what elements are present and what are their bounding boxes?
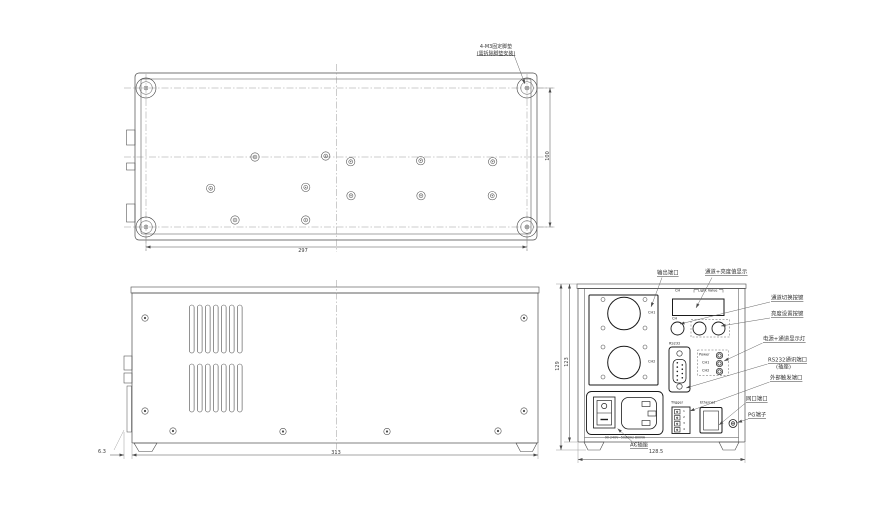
ch1-led-label: CH1 [702, 361, 709, 365]
trigger-label: Trigger [671, 401, 683, 405]
ch2-led-label: CH2 [702, 369, 709, 373]
side-outline [132, 293, 538, 443]
output-ch1-label: CH1 [648, 311, 655, 315]
bottom-view [124, 64, 553, 252]
foot-pad-note-line2: (需拆除脚垫安装) [477, 51, 516, 56]
side-view [114, 280, 539, 452]
callout-indicators: 电源+通道显示灯 [763, 337, 805, 343]
lid-edge [577, 284, 746, 289]
side-tab [124, 356, 132, 370]
callout-brightness-set: 亮度设置按键 [771, 312, 803, 318]
dim-width-value: 297 [298, 249, 307, 254]
trigger-pin-1: 1 [683, 410, 685, 413]
ac-inlet-module [587, 392, 664, 435]
side-tab [127, 130, 136, 145]
side-tab [124, 373, 132, 383]
callout-ac-socket: AC插座 [630, 443, 648, 449]
channel-button-label: CH [672, 317, 677, 321]
centerlines [124, 64, 553, 252]
rs232-connector [669, 347, 690, 392]
screw-holes [207, 152, 497, 224]
callout-channel-switch: 通道切换按键 [771, 296, 803, 302]
foot [134, 443, 157, 452]
power-led-label: Power [699, 353, 710, 357]
channel-button [671, 322, 684, 335]
lid-edge [131, 287, 539, 293]
brightness-up-button [712, 322, 725, 335]
back-view [577, 284, 746, 450]
dim-foot-offset-value: 6.3 [98, 449, 106, 454]
output-connector-ch2 [608, 346, 641, 379]
callout-lan-port: 网口端口 [746, 397, 768, 403]
side-tab [127, 163, 136, 170]
ac-rating-label: 90-240V~50/60Hz 800VA [604, 436, 644, 439]
foot [584, 442, 604, 450]
foot-pad-note-line1: 4-M3固定脚垫 [480, 44, 512, 49]
digital-display [673, 299, 725, 316]
callout-trigger-port: 外部触发端口 [770, 376, 802, 382]
projection-line [114, 430, 124, 450]
dim-back-height-outer-value: 129 [556, 361, 561, 370]
display-ch-label: CH [675, 289, 680, 293]
display-bracket-right [719, 290, 723, 293]
foot [516, 443, 537, 452]
buttons [671, 322, 725, 335]
pg-terminal [729, 420, 737, 428]
technical-drawing: 4-M3固定脚垫 (需拆除脚垫安装) 297 100 313 6.3 128.5… [0, 0, 888, 522]
display-value-label: Light Value [698, 289, 717, 293]
dim-back-width-value: 128.5 [648, 449, 662, 454]
output-connector-ch1 [608, 297, 641, 330]
callout-display: 通道+亮度值显示 [705, 270, 747, 276]
iec-inlet [622, 398, 657, 430]
screw-holes [142, 315, 527, 435]
trigger-pin-4: 4 [683, 428, 685, 431]
trigger-pin-3: 3 [683, 422, 685, 425]
side-tab [127, 204, 136, 222]
callout-rs232-line2: (插座) [776, 365, 791, 370]
ethernet-label: Ethernet [700, 401, 715, 405]
side-tab [127, 386, 132, 432]
leader-lines [514, 55, 770, 446]
dim-depth-value: 100 [546, 151, 551, 160]
output-panel [589, 295, 658, 385]
case-inner-wall [141, 79, 531, 234]
drawing-linework [0, 0, 888, 522]
ch2-led [716, 368, 722, 374]
foot [719, 442, 739, 450]
case-outline [135, 73, 537, 240]
power-switch [594, 397, 616, 428]
trigger-pin-2: 2 [683, 416, 685, 419]
callout-pg-terminal: PG端子 [748, 413, 766, 419]
dim-back-height-inner-value: 123 [564, 357, 569, 366]
trigger-terminal [672, 407, 690, 434]
callout-rs232-line1: RS232通讯端口 [768, 358, 807, 364]
callout-output-port: 输出端口 [657, 271, 679, 277]
vent-slots [190, 305, 243, 412]
switch-off-symbol [602, 403, 607, 408]
brightness-down-button [693, 322, 706, 335]
dim-length-value: 313 [331, 450, 340, 455]
power-led [716, 352, 722, 358]
rs232-label: RS232 [669, 342, 680, 346]
output-ch2-label: CH2 [648, 360, 655, 364]
ethernet-port [700, 408, 722, 434]
ch1-led [716, 360, 722, 366]
